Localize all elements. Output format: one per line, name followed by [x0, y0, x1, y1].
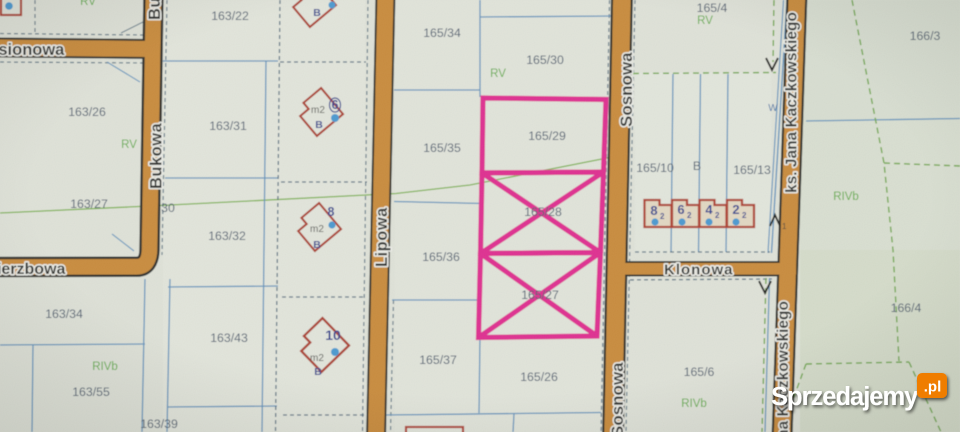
svg-text:.pl: .pl — [924, 379, 942, 396]
svg-text:Sprzedajemy: Sprzedajemy — [771, 383, 919, 411]
